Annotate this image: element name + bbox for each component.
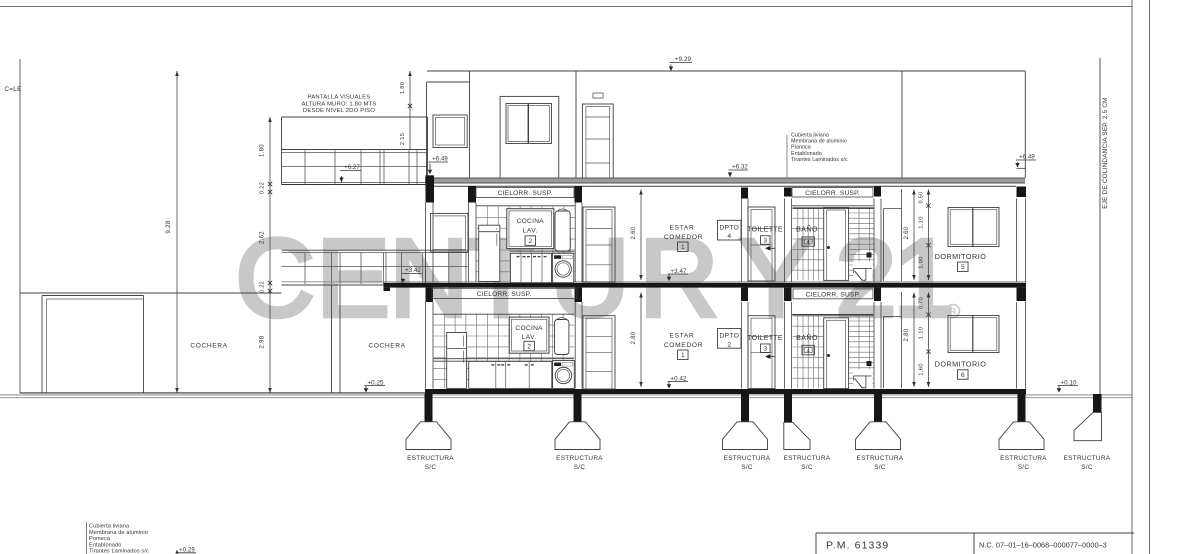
- svg-text:C: C: [235, 217, 314, 340]
- svg-text:ESTRUCTURA: ESTRUCTURA: [556, 455, 603, 462]
- svg-text:5: 5: [961, 264, 965, 271]
- svg-text:R: R: [950, 307, 957, 317]
- svg-text:0.22: 0.22: [260, 281, 266, 293]
- svg-text:4: 4: [807, 348, 810, 354]
- svg-text:Pomeca: Pomeca: [89, 536, 111, 542]
- svg-text:+6.32: +6.32: [732, 165, 748, 171]
- svg-text:COCINA: COCINA: [517, 218, 545, 225]
- svg-text:N.C. 07–01–16–0068–000077–0000: N.C. 07–01–16–0068–000077–0000–3: [979, 541, 1107, 550]
- svg-text:DPTO: DPTO: [719, 333, 739, 340]
- svg-text:+6.27: +6.27: [344, 165, 360, 171]
- svg-text:Membrana de aluminio: Membrana de aluminio: [89, 530, 148, 536]
- svg-text:ALTURA MURO: 1.80 MTS: ALTURA MURO: 1.80 MTS: [301, 101, 376, 107]
- svg-text:1.60: 1.60: [919, 363, 925, 375]
- svg-text:+0.29: +0.29: [179, 547, 195, 553]
- svg-text:Pianoca: Pianoca: [791, 145, 811, 151]
- svg-text:0.22: 0.22: [260, 182, 266, 194]
- svg-text:PANTALLA VISUALES: PANTALLA VISUALES: [308, 95, 371, 101]
- svg-text:BAÑO: BAÑO: [796, 333, 818, 342]
- svg-text:2.62: 2.62: [260, 231, 266, 244]
- svg-text:Entablonado: Entablonado: [791, 151, 822, 157]
- svg-text:1: 1: [681, 244, 685, 251]
- svg-text:S/C: S/C: [741, 464, 753, 471]
- svg-text:Tirantes Laminados s/c: Tirantes Laminados s/c: [791, 157, 848, 163]
- svg-text:1.10: 1.10: [919, 216, 925, 228]
- svg-text:3: 3: [763, 346, 767, 353]
- svg-text:ESTRUCTURA: ESTRUCTURA: [784, 455, 831, 462]
- svg-text:DESDE NIVEL 2DO PISO: DESDE NIVEL 2DO PISO: [303, 108, 375, 114]
- svg-text:4: 4: [807, 240, 810, 246]
- svg-text:CIELORR. SUSP.: CIELORR. SUSP.: [806, 291, 861, 298]
- svg-text:DORMITORIO: DORMITORIO: [935, 252, 987, 261]
- svg-text:Tirantes Laminados s/c: Tirantes Laminados s/c: [89, 549, 149, 554]
- svg-text:Membrana de aluminio: Membrana de aluminio: [791, 139, 847, 145]
- svg-text:S/C: S/C: [874, 464, 886, 471]
- svg-text:C=LE: C=LE: [4, 86, 22, 93]
- svg-text:CIELORR. SUSP.: CIELORR. SUSP.: [498, 190, 553, 197]
- svg-text:+6.49: +6.49: [432, 157, 448, 163]
- svg-text:ESTRUCTURA: ESTRUCTURA: [1064, 455, 1111, 462]
- svg-text:1.00: 1.00: [919, 256, 925, 268]
- svg-text:2.60: 2.60: [904, 226, 910, 239]
- svg-text:2.60: 2.60: [631, 226, 637, 239]
- svg-text:S/C: S/C: [801, 464, 813, 471]
- svg-text:1: 1: [893, 217, 954, 340]
- svg-text:2: 2: [727, 341, 731, 348]
- svg-text:S/C: S/C: [1018, 464, 1030, 471]
- svg-text:1: 1: [681, 352, 685, 359]
- svg-text:9.28: 9.28: [165, 220, 172, 234]
- svg-text:COCHERA: COCHERA: [190, 343, 227, 350]
- svg-text:+0.25: +0.25: [367, 379, 384, 386]
- svg-text:TOILETTE: TOILETTE: [747, 335, 783, 342]
- svg-text:4: 4: [727, 233, 731, 240]
- svg-text:1.80: 1.80: [260, 144, 266, 157]
- svg-text:COCHERA: COCHERA: [368, 343, 405, 350]
- svg-text:0.50: 0.50: [919, 191, 925, 203]
- svg-text:TOILETTE: TOILETTE: [747, 227, 783, 234]
- svg-text:COCINA: COCINA: [515, 325, 543, 332]
- svg-text:2: 2: [527, 343, 531, 350]
- svg-text:+6.49: +6.49: [1019, 155, 1035, 161]
- svg-text:2.98: 2.98: [260, 335, 266, 348]
- svg-text:2.80: 2.80: [904, 328, 910, 341]
- svg-text:Y: Y: [739, 217, 812, 340]
- svg-text:CIELORR. SUSP.: CIELORR. SUSP.: [805, 190, 860, 197]
- svg-text:EJE DE COLINDANCIA SEP. 2.5 CM: EJE DE COLINDANCIA SEP. 2.5 CM: [1102, 97, 1109, 208]
- svg-text:+3.47: +3.47: [670, 268, 687, 275]
- svg-text:ESTRUCTURA: ESTRUCTURA: [407, 455, 454, 462]
- svg-text:S/C: S/C: [1081, 464, 1093, 471]
- svg-text:ESTRUCTURA: ESTRUCTURA: [1000, 455, 1047, 462]
- svg-text:DPTO: DPTO: [719, 224, 739, 231]
- svg-text:N: N: [389, 217, 468, 340]
- svg-text:ESTAR: ESTAR: [670, 225, 695, 232]
- svg-text:1.80: 1.80: [400, 82, 406, 94]
- svg-text:ESTAR: ESTAR: [670, 333, 695, 340]
- svg-text:+3.42: +3.42: [405, 268, 421, 274]
- svg-text:Cubierta liviana: Cubierta liviana: [89, 524, 130, 530]
- svg-text:ESTRUCTURA: ESTRUCTURA: [724, 455, 771, 462]
- svg-text:3: 3: [763, 237, 767, 244]
- svg-text:BAÑO: BAÑO: [796, 225, 818, 234]
- svg-text:+0.10: +0.10: [1060, 379, 1077, 386]
- svg-text:P.M. 61339: P.M. 61339: [826, 540, 889, 552]
- svg-text:2: 2: [528, 238, 532, 245]
- svg-text:COMEDOR: COMEDOR: [664, 342, 703, 349]
- svg-text:6: 6: [961, 372, 965, 379]
- svg-text:S/C: S/C: [425, 464, 437, 471]
- svg-text:S/C: S/C: [574, 464, 586, 471]
- svg-text:+0.42: +0.42: [670, 375, 687, 382]
- svg-text:COMEDOR: COMEDOR: [664, 234, 703, 241]
- svg-text:+9.29: +9.29: [675, 56, 692, 63]
- svg-text:Entablonado: Entablonado: [89, 542, 122, 548]
- svg-text:DORMITORIO: DORMITORIO: [935, 360, 987, 369]
- svg-text:LAV.: LAV.: [523, 228, 538, 235]
- svg-text:LAV.: LAV.: [522, 334, 537, 341]
- svg-text:ESTRUCTURA: ESTRUCTURA: [857, 455, 904, 462]
- svg-text:E: E: [316, 217, 389, 340]
- svg-text:2.80: 2.80: [631, 331, 637, 344]
- svg-text:0.70: 0.70: [919, 297, 925, 309]
- svg-text:Cubierta liviana: Cubierta liviana: [791, 133, 829, 139]
- svg-text:CIELORR. SUSP.: CIELORR. SUSP.: [477, 291, 532, 298]
- svg-text:1.10: 1.10: [919, 327, 925, 339]
- svg-text:2.15: 2.15: [400, 133, 406, 145]
